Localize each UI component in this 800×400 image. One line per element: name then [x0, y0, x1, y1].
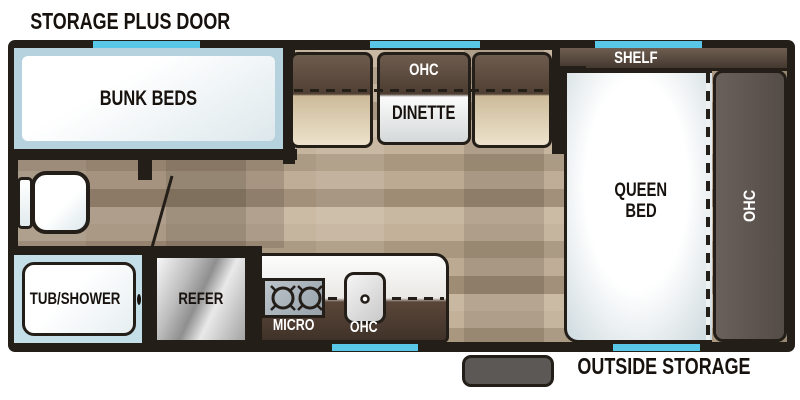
floorplan-canvas: STORAGE PLUS DOOR BUNK BEDS TUB/SHOWER R…: [0, 0, 800, 400]
overlay-graphics: [0, 0, 800, 400]
faucet-icon: [362, 296, 369, 303]
burner-icons: [271, 286, 322, 310]
bathroom-door-swing-line: [151, 176, 172, 251]
